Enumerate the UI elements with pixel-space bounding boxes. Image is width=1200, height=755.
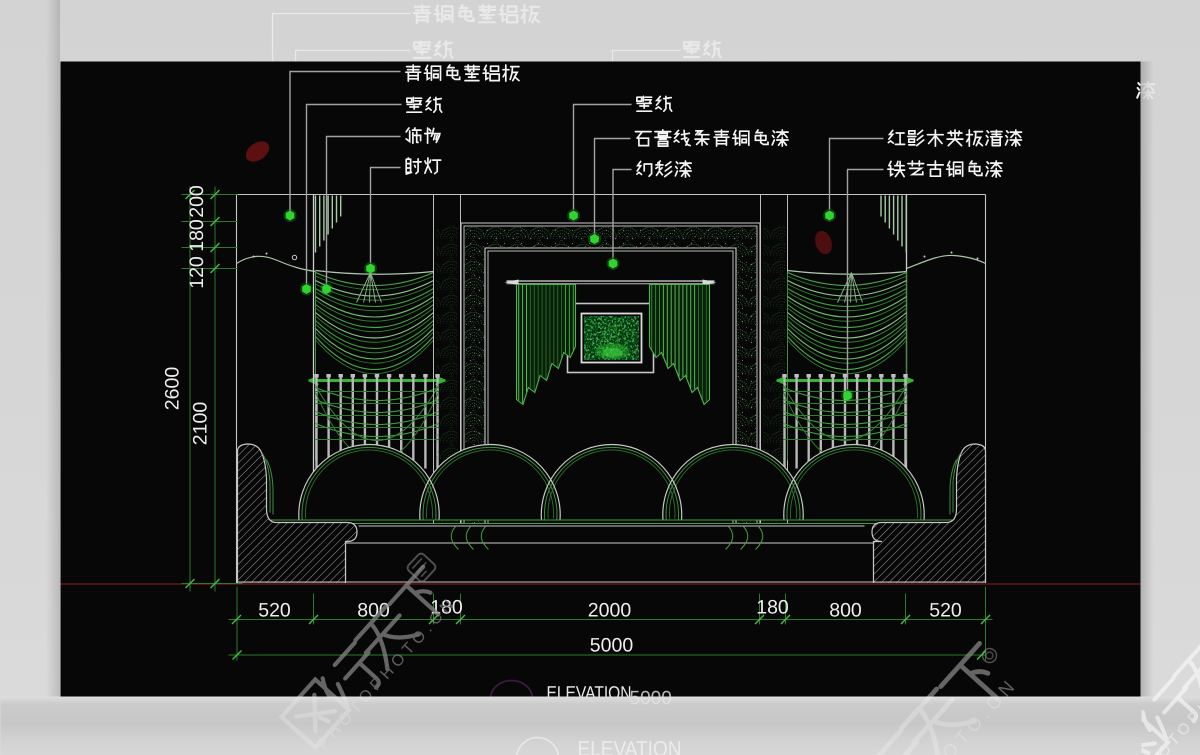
svg-text:2100: 2100: [190, 402, 212, 446]
svg-text:5000: 5000: [630, 688, 672, 709]
svg-text:520: 520: [929, 600, 962, 622]
svg-text:180: 180: [756, 597, 789, 619]
svg-text:ELEVATION: ELEVATION: [578, 737, 682, 755]
svg-text:2000: 2000: [588, 600, 632, 622]
svg-text:520: 520: [258, 600, 291, 622]
svg-text:200: 200: [186, 185, 208, 218]
svg-text:120: 120: [186, 256, 208, 289]
svg-text:180: 180: [186, 219, 208, 252]
svg-text:5000: 5000: [590, 635, 634, 657]
svg-text:2600: 2600: [162, 367, 184, 411]
svg-text:800: 800: [829, 600, 862, 622]
